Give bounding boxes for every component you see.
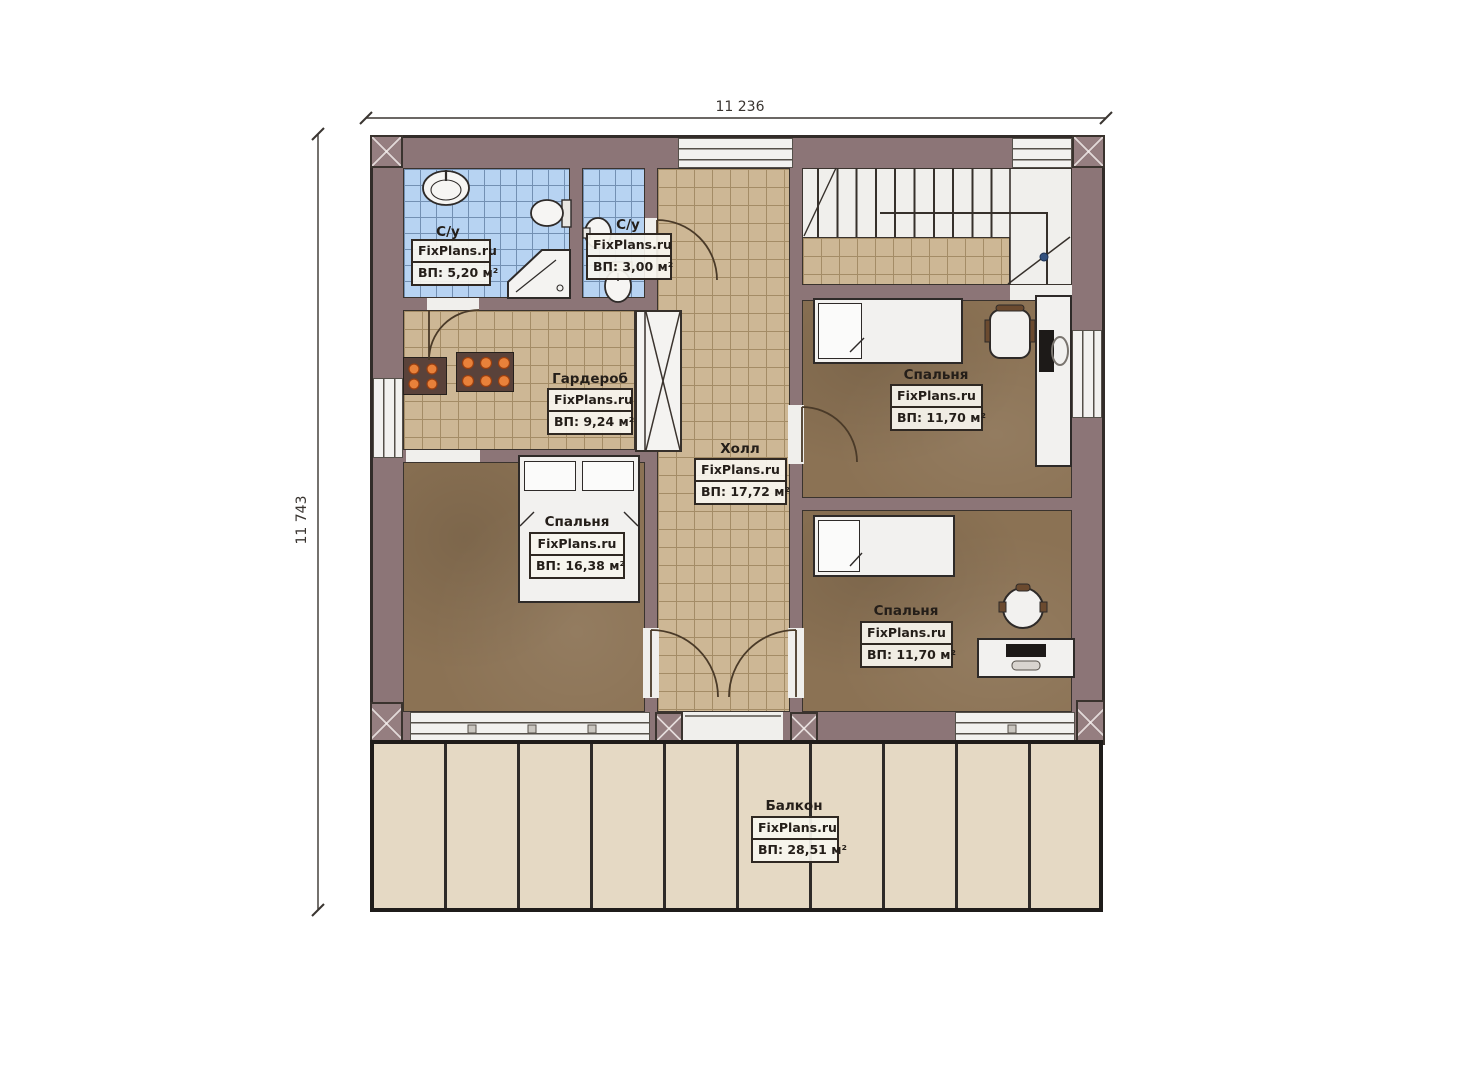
desk-bottom-right xyxy=(977,638,1075,678)
hall-name: Холл xyxy=(720,441,759,457)
bathroom-1-name: С/у xyxy=(436,224,460,240)
area-label: ВП: 11,70 м² xyxy=(890,406,983,430)
brand-label: FixPlans.ru xyxy=(411,239,491,263)
bedroom-bottom-right-name: Спальня xyxy=(874,603,939,619)
wardrobe-cabinet-large xyxy=(456,352,514,392)
bathroom-2-name: С/у xyxy=(616,217,640,233)
bedroom-master-door-opening xyxy=(643,628,659,698)
area-label: ВП: 17,72 м² xyxy=(694,480,787,504)
brand-label: FixPlans.ru xyxy=(547,388,633,412)
area-label: ВП: 28,51 м² xyxy=(751,838,839,862)
pillar-bottom-right xyxy=(1076,700,1105,745)
staircase-landing xyxy=(802,237,1010,285)
wardrobe-plate: FixPlans.ru ВП: 9,24 м² xyxy=(547,388,633,435)
bedroom-bottom-right-plate: FixPlans.ru ВП: 11,70 м² xyxy=(860,621,953,668)
bathroom-1-door-opening xyxy=(427,298,479,310)
brand-label: FixPlans.ru xyxy=(890,384,983,408)
brand-label: FixPlans.ru xyxy=(529,532,625,556)
single-bed-bottom-pillow xyxy=(818,520,860,572)
hall-plate: FixPlans.ru ВП: 17,72 м² xyxy=(694,458,787,505)
built-in-closet xyxy=(635,310,682,452)
bedroom-bottom-right-door-opening xyxy=(788,628,804,698)
bedroom-top-right-name: Спальня xyxy=(904,367,969,383)
area-label: ВП: 11,70 м² xyxy=(860,643,953,667)
bedroom-master-plate: FixPlans.ru ВП: 16,38 м² xyxy=(529,532,625,579)
wardrobe-name: Гардероб xyxy=(552,371,628,387)
bedroom-top-right-door-opening xyxy=(788,405,804,464)
balcony-plate: FixPlans.ru ВП: 28,51 м² xyxy=(751,816,839,863)
bedroom-master-name: Спальня xyxy=(545,514,610,530)
bedroom-top-right-plate: FixPlans.ru ВП: 11,70 м² xyxy=(890,384,983,431)
balcony-deck xyxy=(370,740,1103,912)
floor-plan-canvas: 11 236 11 743 С/у FixPlans.ru ВП: 5,20 м… xyxy=(0,0,1473,1080)
window-bedroom-balcony xyxy=(955,712,1075,742)
pillow-left xyxy=(524,461,576,491)
pillar-bottom-left xyxy=(370,702,403,745)
area-label: ВП: 16,38 м² xyxy=(529,554,625,578)
balcony-door-opening xyxy=(683,712,783,742)
brand-label: FixPlans.ru xyxy=(751,816,839,840)
window-master-balcony xyxy=(410,712,650,742)
staircase-steps xyxy=(817,168,1010,238)
brand-label: FixPlans.ru xyxy=(860,621,953,645)
window-top-hall xyxy=(678,138,793,168)
brand-label: FixPlans.ru xyxy=(586,233,672,257)
bathroom-1-plate: FixPlans.ru ВП: 5,20 м² xyxy=(411,239,491,286)
wardrobe-cabinet-small xyxy=(403,357,447,395)
window-top-stairs xyxy=(1012,138,1072,168)
area-label: ВП: 9,24 м² xyxy=(547,410,633,434)
bathroom-2-plate: FixPlans.ru ВП: 3,00 м² xyxy=(586,233,672,280)
pillar-top-right xyxy=(1072,135,1105,168)
brand-label: FixPlans.ru xyxy=(694,458,787,482)
area-label: ВП: 5,20 м² xyxy=(411,261,491,285)
area-label: ВП: 3,00 м² xyxy=(586,255,672,279)
dimension-top-label: 11 236 xyxy=(710,99,770,115)
pillar-top-left xyxy=(370,135,403,168)
desk-top-right xyxy=(1035,295,1072,467)
single-bed-top-pillow xyxy=(818,303,862,359)
dimension-left-label: 11 743 xyxy=(294,480,310,560)
window-left xyxy=(373,378,403,458)
pillow-right xyxy=(582,461,634,491)
window-right xyxy=(1072,330,1102,418)
balcony-name: Балкон xyxy=(765,798,822,814)
wardrobe-master-opening xyxy=(406,450,480,462)
